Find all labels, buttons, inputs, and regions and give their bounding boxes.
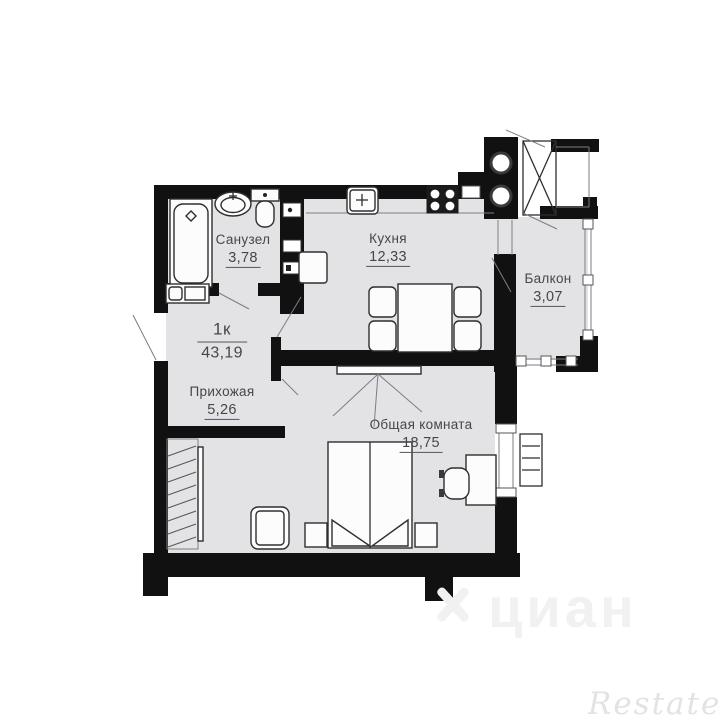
fridge-icon (299, 252, 327, 283)
chair-icon (454, 287, 481, 317)
riser-pier-tab (458, 172, 486, 187)
desk-icon (466, 455, 496, 505)
balcony-doorway-floor (494, 219, 516, 256)
hallway-name: Прихожая (190, 384, 255, 400)
stove-icon (427, 186, 458, 213)
bathroom-name: Санузел (216, 232, 271, 248)
radiator-icon (520, 434, 542, 486)
balcony-label: Балкон 3,07 (524, 271, 571, 307)
left-wall-lower (154, 361, 168, 557)
bathtub-icon (170, 199, 212, 287)
chair-icon (369, 287, 396, 317)
living-room-name: Общая комната (370, 417, 473, 433)
bathroom-wall-right (258, 283, 282, 296)
kitchen-label: Кухня 12,33 (366, 231, 410, 267)
dining-table-icon (398, 284, 452, 352)
wardrobe-door (198, 447, 203, 541)
living-room-label: Общая комната 18,75 (370, 417, 473, 453)
armchair-icon (251, 507, 289, 549)
chair-icon (454, 321, 481, 351)
balcony-name: Балкон (524, 271, 571, 287)
desk-chair-icon (439, 468, 469, 499)
floorplan-drawing (0, 0, 725, 725)
living-window (495, 424, 517, 497)
wall-niche (462, 186, 480, 198)
unit-total-area: 43,19 (197, 341, 247, 362)
balcony-corner-bottom (556, 356, 598, 372)
living-kitchen-wall (272, 350, 497, 366)
right-wall-upper (495, 366, 517, 424)
hallway-bottom-wall (166, 426, 285, 438)
kitchen-area: 12,33 (366, 248, 410, 267)
neighbor-top-wall (551, 139, 599, 152)
living-room-area: 18,75 (399, 434, 443, 453)
hallway-label: Прихожая 5,26 (190, 384, 255, 420)
hallway-area: 5,26 (204, 401, 239, 420)
kitchen-sink-icon (347, 187, 378, 214)
nightstand-icon (305, 523, 327, 547)
bottom-wall-step (425, 577, 453, 601)
right-wall-lower (495, 497, 517, 555)
kitchen-name: Кухня (366, 231, 410, 247)
entrance-door-swing (133, 315, 156, 360)
unit-label: 1к 43,19 (197, 320, 247, 363)
balcony-area: 3,07 (530, 288, 565, 307)
neighbor-wall-block (583, 197, 597, 210)
unit-rooms-count: 1к (197, 320, 247, 340)
double-bed-icon (328, 442, 412, 548)
bottom-wall (143, 553, 520, 577)
bathroom-area: 3,78 (225, 249, 260, 268)
bathroom-label: Санузел 3,78 (216, 232, 271, 268)
washing-machine-icon (166, 284, 209, 303)
floorplan-image: Санузел 3,78 Кухня 12,33 Балкон 3,07 1к … (0, 0, 725, 725)
living-kitchen-wall-cap (271, 337, 281, 381)
chair-icon (369, 321, 396, 351)
shaft-x-box (523, 141, 556, 215)
balcony-left-wall (494, 254, 516, 372)
washbasin-icon (215, 192, 251, 216)
nightstand-icon (415, 523, 437, 547)
bottom-left-corner (143, 553, 168, 596)
